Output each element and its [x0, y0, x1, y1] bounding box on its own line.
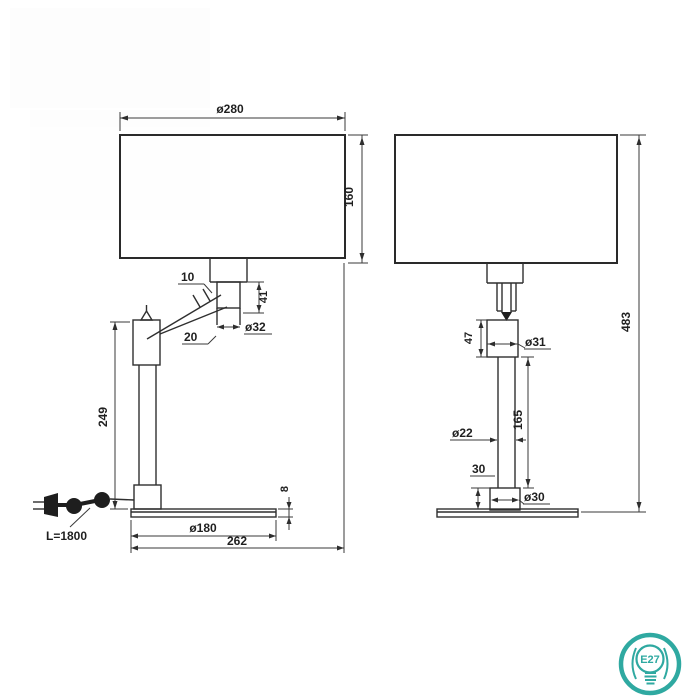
side-holder-block: [487, 320, 518, 357]
technical-drawing-canvas: ø280 160 10 41 ø32 20: [0, 0, 700, 700]
front-joint-block: [133, 305, 160, 365]
dim-shade-diameter: ø280: [216, 102, 244, 116]
e27-badge: E27: [621, 635, 679, 693]
bulb-screw-base-icon: [645, 673, 657, 684]
front-socket-block: [217, 282, 240, 325]
dim-base-diameter: ø180: [189, 521, 217, 535]
plug-body: [44, 493, 58, 517]
front-base-plate: [131, 509, 276, 517]
dim-socket-diameter: ø32: [245, 320, 266, 334]
dim-shade-height: 160: [342, 187, 356, 207]
dim-mount-height: 30: [472, 462, 486, 476]
arm-tick-2: [193, 295, 200, 307]
front-column: [134, 365, 161, 509]
side-shade: [395, 135, 617, 263]
dim-holder-height: 47: [463, 332, 475, 344]
dim-mount-diameter: ø30: [524, 490, 545, 504]
arm-tick-1: [203, 289, 210, 301]
dim-arm-offset: 10: [181, 270, 195, 284]
front-neck: [210, 258, 247, 282]
dim-column-height: 249: [96, 407, 110, 427]
watermark: [10, 8, 210, 220]
dim-overall-height: 483: [619, 312, 633, 332]
front-column-foot: [134, 485, 161, 509]
dim-arm-width: 20: [184, 330, 198, 344]
lamp-dimension-drawing: ø280 160 10 41 ø32 20: [0, 0, 700, 700]
side-neck: [487, 263, 523, 283]
bulb-right-ray: [664, 648, 668, 679]
bulb-left-ray: [633, 648, 637, 679]
cord-bulge: [66, 498, 82, 514]
dim-column-section-height: 165: [511, 410, 525, 430]
dim-overall-width: 262: [227, 534, 247, 548]
dim-socket-height: 41: [258, 291, 270, 303]
badge-socket-label: E27: [640, 654, 660, 666]
dim-column-diameter: ø22: [452, 426, 473, 440]
dim-holder-diameter: ø31: [525, 335, 546, 349]
side-view: 47 ø31 165 ø22 30 ø30: [395, 135, 646, 517]
cord-bulge: [94, 492, 110, 508]
dim-cord-length: L=1800: [46, 529, 87, 543]
dim-base-thickness: 8: [279, 486, 291, 492]
side-bulb-holder: [497, 283, 516, 321]
